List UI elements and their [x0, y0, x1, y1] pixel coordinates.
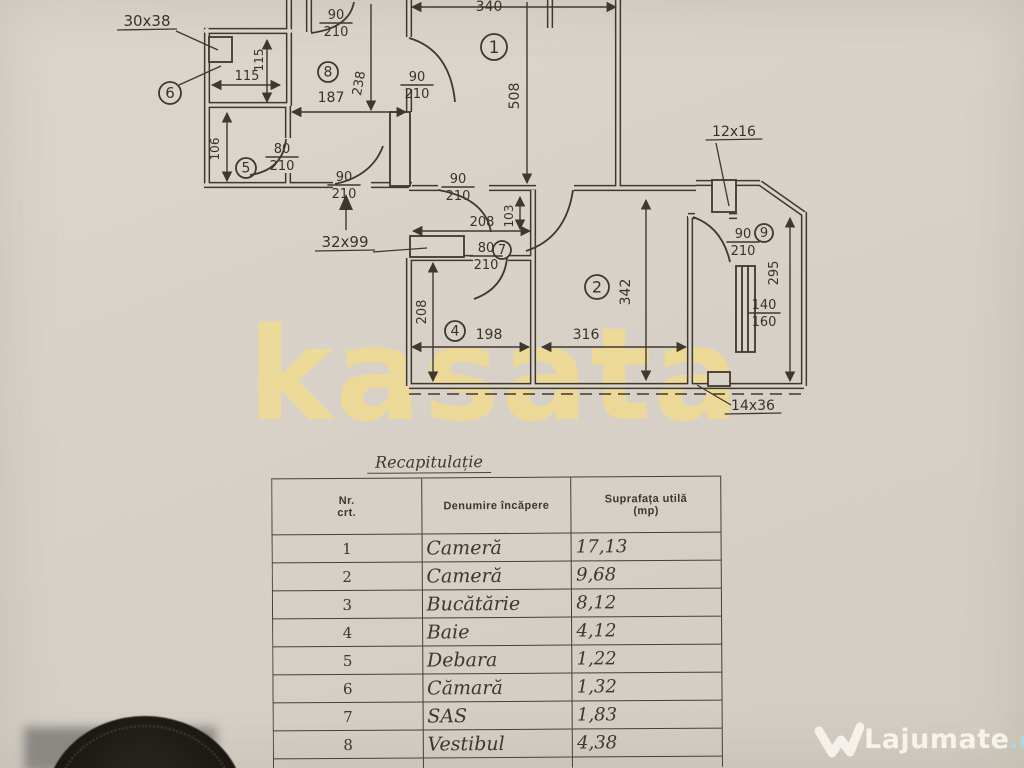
door-dim-top: 90	[450, 172, 467, 187]
room-number: 7	[498, 243, 506, 258]
wall-pillar	[390, 112, 410, 186]
table-title: Recapitulație	[367, 452, 491, 474]
table-row: 1Cameră17,13	[272, 532, 721, 563]
dimension-label: 198	[476, 327, 503, 343]
lajumate-heart-icon	[800, 714, 864, 764]
dimension-label: 30x38	[123, 12, 170, 30]
room-number: 4	[451, 324, 460, 340]
table-cell-nr: 1	[272, 534, 422, 563]
table-cell-nr: 7	[273, 702, 423, 731]
door-dim-bottom: 210	[405, 87, 430, 102]
dimension-label: 32x99	[321, 233, 368, 251]
table-cell-ar: 1,32	[572, 672, 722, 701]
table-cell-ar: 8,12	[572, 588, 722, 617]
dimension-label: 115	[252, 49, 266, 72]
table-row: 7SAS1,83	[273, 700, 722, 731]
door-dim-top: 90	[735, 227, 752, 242]
door-dim-bottom: 210	[446, 189, 471, 204]
room-number: 9	[760, 226, 768, 241]
table-cell-nm: Cameră	[422, 533, 572, 562]
col-header-area: Suprafața utilă (mp)	[571, 476, 721, 533]
room-number: 5	[242, 161, 251, 177]
table-row: 3Bucătărie8,12	[272, 588, 721, 619]
table-cell-nm: Cameră	[422, 561, 572, 590]
table-row: 8Vestibul4,38	[273, 728, 722, 759]
door-dim-top: 90	[328, 8, 345, 23]
room-number: 2	[592, 277, 602, 296]
dimension-label: 340	[476, 0, 503, 15]
dimension-label: 187	[318, 90, 345, 106]
dimension-label: 14x36	[731, 398, 775, 414]
door-dim-top: 80	[478, 241, 495, 256]
table-row: 6Cămară1,32	[273, 672, 722, 703]
dimension-label: 12x16	[712, 124, 756, 140]
table-cell-nm: Vestibul	[423, 729, 573, 758]
floor-plan-drawing: 30x3812x1632x9914x3634050811511510618723…	[0, 0, 1024, 460]
table-cell-nm: Baie	[422, 617, 572, 646]
table-cell-ar: 17,13	[571, 532, 721, 561]
door-dim-bottom: 210	[731, 244, 756, 259]
table-cell-nr: 5	[273, 646, 423, 675]
room-number: 8	[324, 65, 333, 81]
table-cell-nr: 2	[272, 562, 422, 591]
table-cell-ar: 1,83	[572, 700, 722, 729]
room-number: 6	[165, 84, 175, 102]
dimension-label: 342	[618, 279, 634, 306]
door-dim-bottom: 210	[332, 187, 357, 202]
table-cell-nm: SAS	[423, 701, 573, 730]
table-cell-nr: 8	[273, 730, 423, 759]
table-cell-nr: 6	[273, 674, 423, 703]
door-dim-top: 90	[336, 170, 353, 185]
col-header-name: Denumire încăpere	[421, 477, 571, 534]
dimension-label: 106	[208, 138, 222, 161]
table-cell-ar: 4,38	[573, 728, 723, 757]
dimension-label: 316	[573, 327, 600, 343]
table-cell-nr: 3	[272, 590, 422, 619]
dimension-label: 508	[507, 83, 523, 110]
door-dim-top: 80	[274, 142, 291, 157]
door-dim-bottom: 160	[752, 315, 777, 330]
table-cell-nm: Cămară	[423, 673, 573, 702]
dimension-label: 238	[350, 70, 369, 97]
recap-table-section: Recapitulație Nr. crt. Denumire încăpere…	[271, 451, 727, 768]
element-14x36	[708, 372, 730, 386]
wall-32x99	[410, 236, 464, 257]
table-cell-nm: Bucătărie	[422, 589, 572, 618]
table-cell-ar: 9,68	[572, 560, 722, 589]
dimension-label: 208	[470, 215, 495, 230]
lajumate-logo: Lajumate.ro	[800, 714, 1015, 764]
dimension-label: 208	[415, 300, 430, 325]
logo-text: Lajumate.ro	[864, 724, 1024, 755]
shaft-30x38	[209, 37, 232, 62]
door-dim-bottom: 210	[324, 25, 349, 40]
table-row-partial	[273, 756, 722, 768]
scanned-floor-plan-page: kasata	[0, 0, 1024, 768]
table-row: 4Baie4,12	[273, 616, 722, 647]
dimension-label: 103	[502, 205, 516, 228]
round-ink-stamp	[46, 716, 244, 768]
table-cell-nr: 4	[273, 618, 423, 647]
table-cell-nm: Debara	[422, 645, 572, 674]
door-dim-top: 140	[752, 298, 777, 313]
dimension-label: 295	[767, 261, 782, 286]
table-cell-ar: 1,22	[572, 644, 722, 673]
door-dim-bottom: 210	[270, 159, 295, 174]
door-dim-bottom: 210	[474, 258, 499, 273]
table-cell-ar: 4,12	[572, 616, 722, 645]
door-dim-top: 90	[409, 70, 426, 85]
table-row: 2Cameră9,68	[272, 560, 721, 591]
room-area-table: Nr. crt. Denumire încăpere Suprafața uti…	[271, 476, 723, 768]
logo-tld: .ro	[1009, 728, 1024, 754]
room-number: 1	[489, 38, 500, 58]
table-row: 5Debara1,22	[273, 644, 722, 675]
col-header-nr: Nr. crt.	[272, 478, 422, 535]
